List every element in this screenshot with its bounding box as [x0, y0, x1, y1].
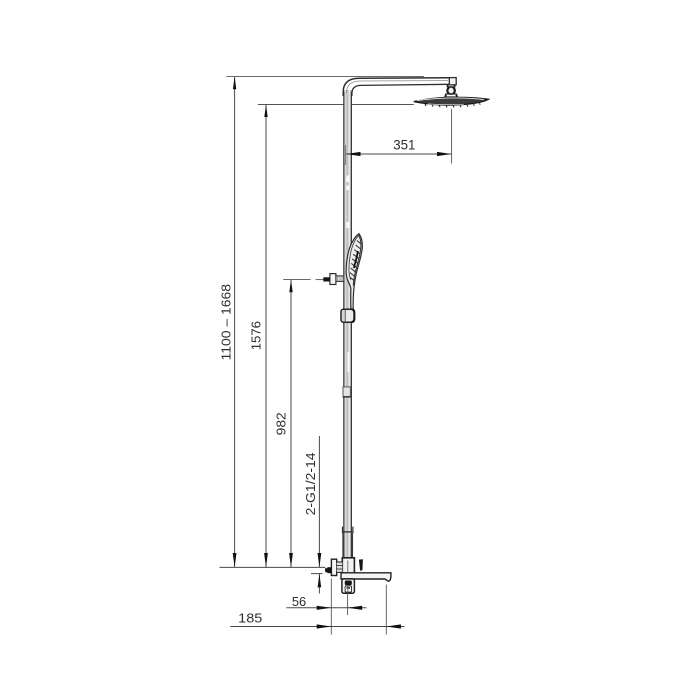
- svg-text:982: 982: [274, 412, 289, 435]
- svg-text:185: 185: [238, 610, 262, 625]
- svg-text:56: 56: [292, 594, 306, 609]
- svg-text:351: 351: [393, 137, 415, 153]
- svg-text:2-G1/2-14: 2-G1/2-14: [303, 452, 318, 515]
- svg-text:1576: 1576: [249, 321, 264, 350]
- svg-text:1100 – 1668: 1100 – 1668: [219, 284, 234, 361]
